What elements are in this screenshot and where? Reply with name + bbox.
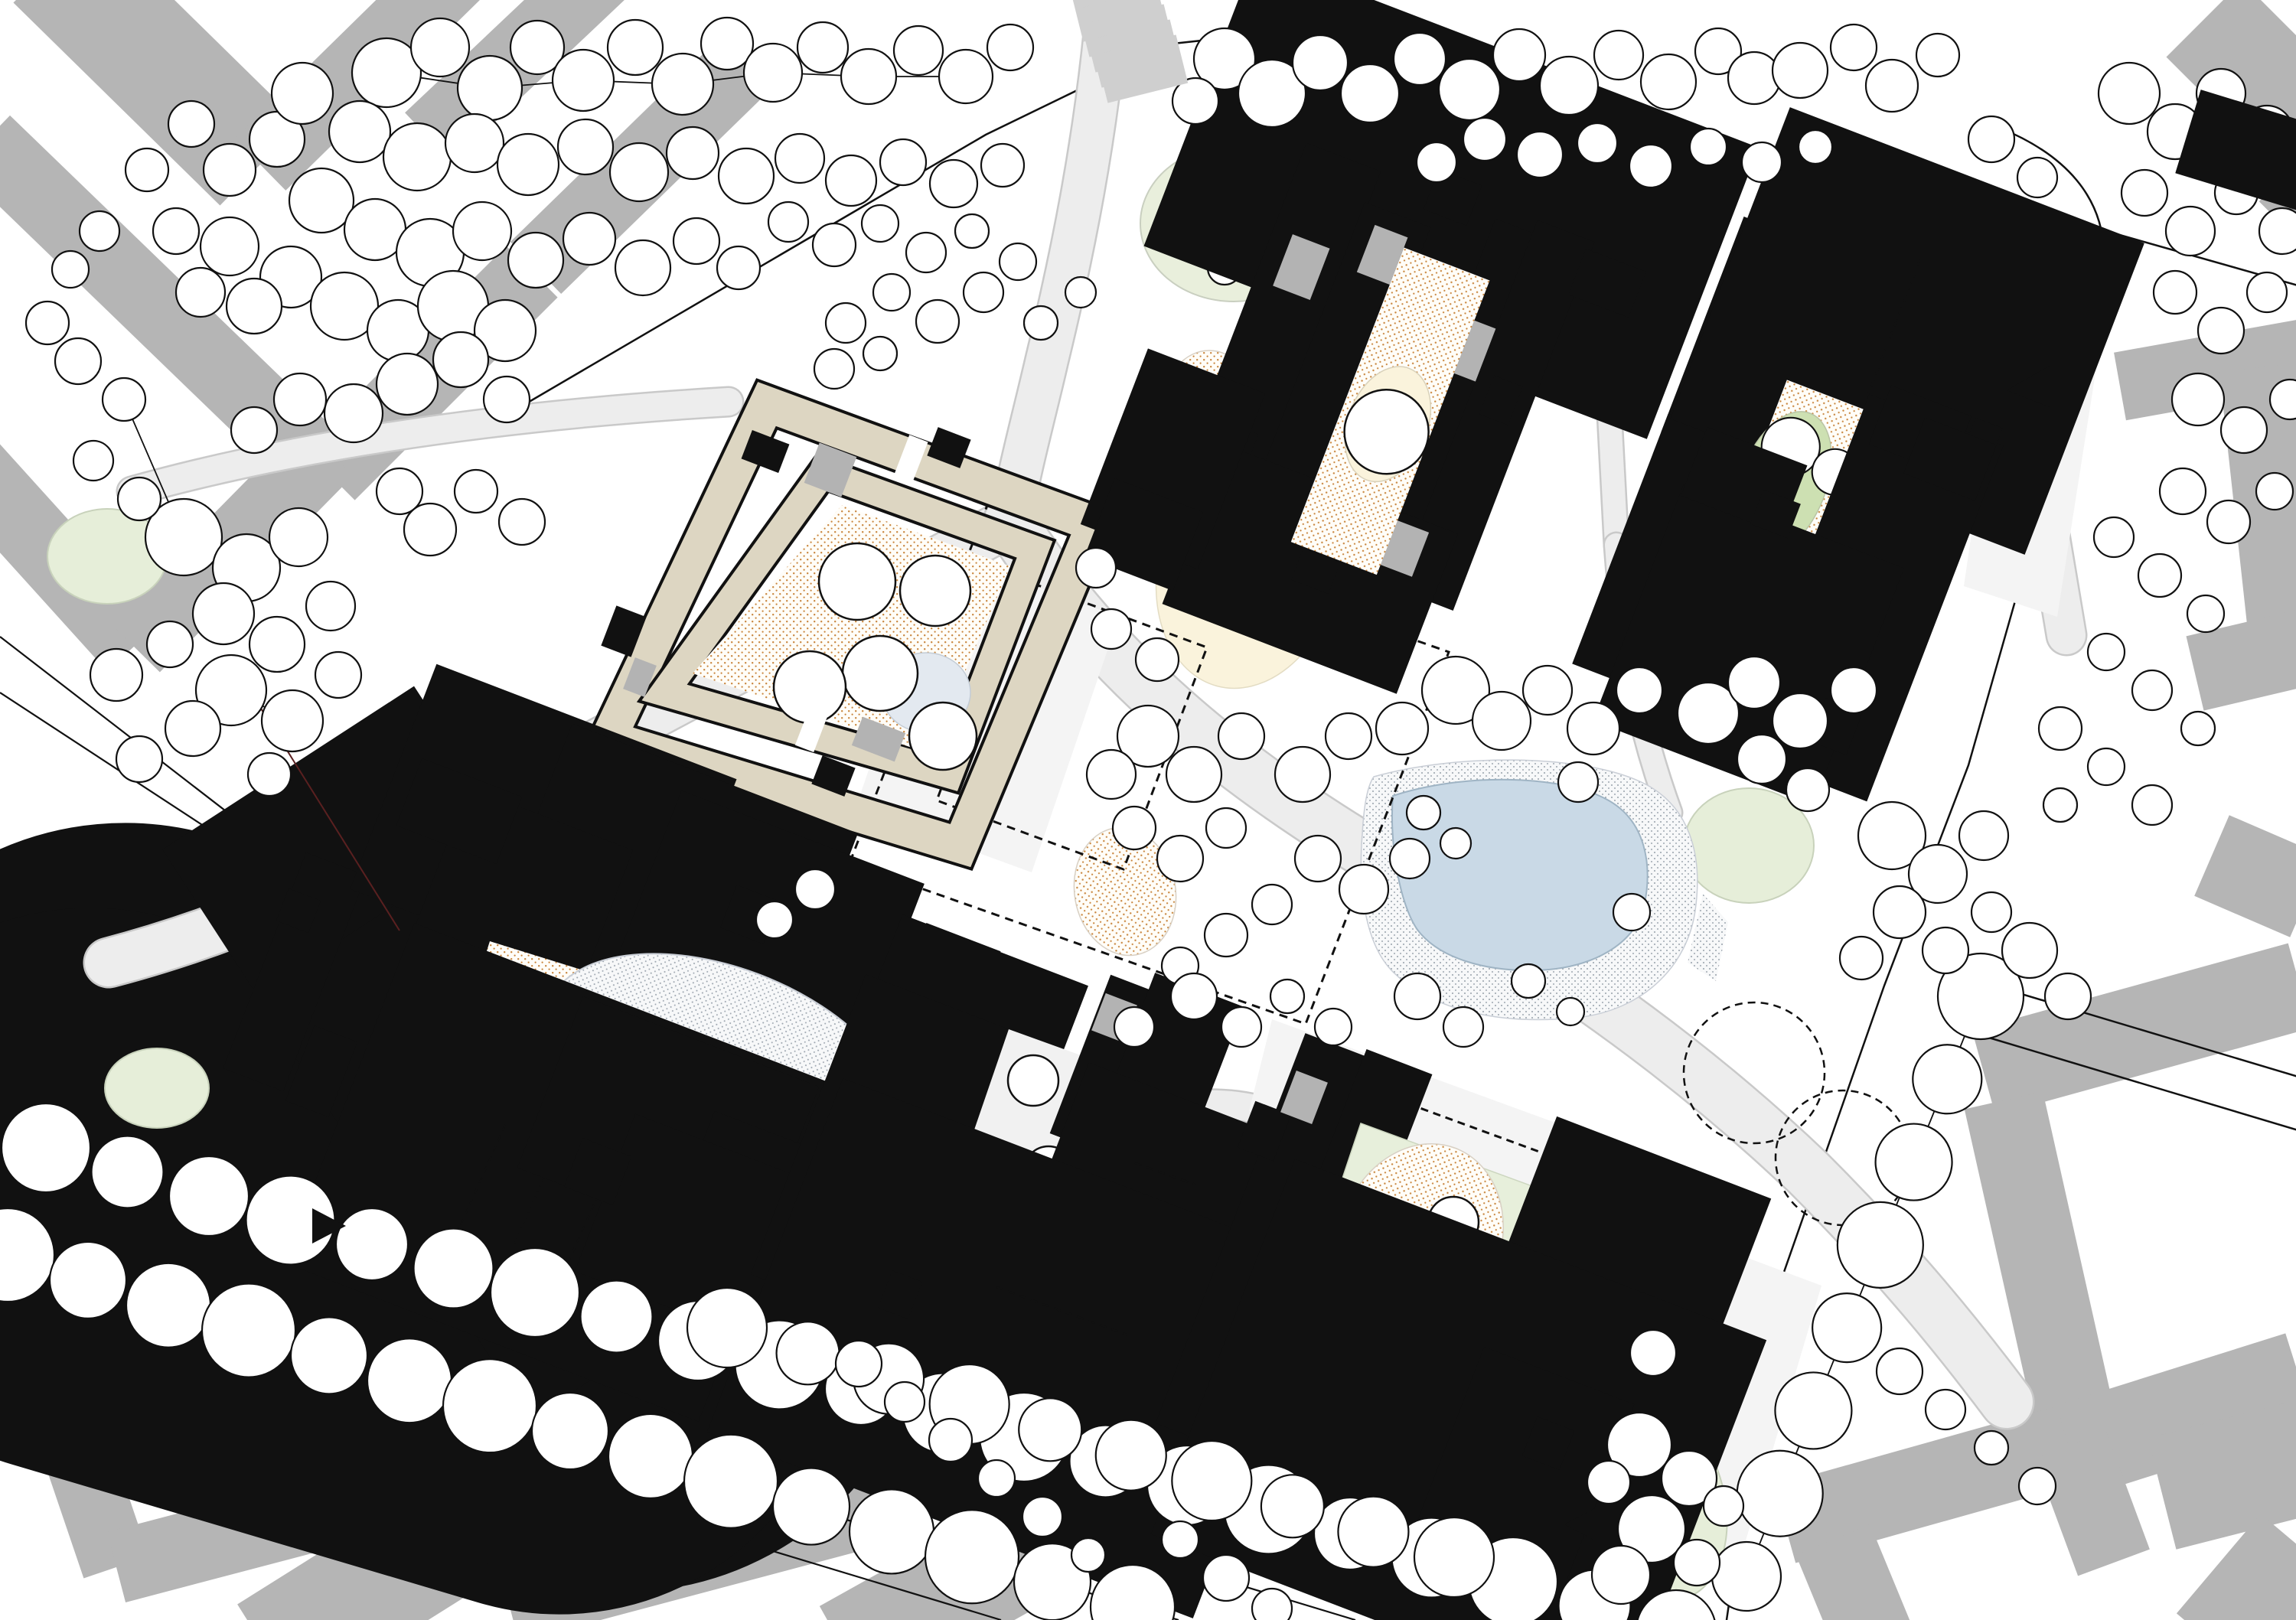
- tree-circle: [2172, 373, 2224, 425]
- tree-circle: [955, 214, 989, 248]
- tree-circle: [836, 1341, 882, 1387]
- tree-circle: [2221, 407, 2267, 453]
- tree-circle: [165, 701, 220, 756]
- tree-row-circle: [581, 1281, 653, 1353]
- tree-circle: [610, 143, 668, 201]
- tree-circle: [315, 652, 361, 698]
- tree-circle: [153, 208, 199, 254]
- tree-circle: [1341, 64, 1399, 122]
- complex-southwest-rect-24: [639, 1178, 757, 1279]
- tree-circle: [1293, 35, 1348, 90]
- tree-circle: [289, 168, 354, 233]
- tree-circle: [1206, 808, 1246, 848]
- tree-circle: [1975, 1431, 2008, 1465]
- tree-circle: [2138, 554, 2181, 597]
- tree-circle: [863, 337, 897, 370]
- landscape-ellipse-15: [105, 1048, 209, 1128]
- tree-circle: [445, 114, 504, 172]
- tree-circle: [813, 223, 856, 266]
- complex-west-circle-8: [843, 636, 918, 711]
- complex-north-grp-0-rect-15: [1115, 509, 1172, 560]
- tree-circle: [325, 384, 383, 442]
- tree-circle: [1071, 1538, 1105, 1572]
- tree-circle: [1326, 713, 1371, 759]
- tree-circle: [1221, 1007, 1261, 1047]
- tree-circle: [453, 202, 511, 260]
- tree-circle: [1517, 132, 1563, 178]
- tree-circle: [433, 332, 488, 387]
- tree-circle: [262, 690, 323, 751]
- tree-circle: [667, 127, 719, 179]
- tree-circle: [1493, 29, 1545, 81]
- tree-circle: [2256, 473, 2293, 510]
- tree-row-circle: [1737, 1451, 1823, 1537]
- tree-circle: [894, 26, 943, 75]
- markers-rect-5-g: [2218, 132, 2289, 170]
- tree-circle: [118, 478, 161, 520]
- complex-southwest-rect-25-g: [581, 1155, 615, 1188]
- tree-circle: [103, 378, 145, 421]
- tree-circle: [1616, 667, 1662, 713]
- tree-circle: [201, 217, 259, 275]
- tree-circle: [1540, 57, 1598, 115]
- tree-circle: [1840, 937, 1883, 979]
- tree-circle: [1295, 836, 1341, 882]
- tree-row-circle: [1812, 1293, 1881, 1362]
- tree-row-circle: [291, 1317, 367, 1393]
- tree-circle: [1742, 142, 1782, 182]
- tree-circle: [1087, 750, 1136, 799]
- tree-circle: [411, 18, 469, 77]
- tree-circle: [826, 155, 876, 206]
- tree-row-circle: [1775, 1372, 1851, 1449]
- tree-circle: [673, 218, 719, 264]
- tree-circle: [916, 300, 959, 343]
- tree-circle: [608, 20, 663, 75]
- markers-rect-4: [1929, 442, 1972, 476]
- tree-circle: [1218, 713, 1264, 759]
- tree-circle: [2043, 788, 2077, 822]
- tree-circle: [1831, 667, 1877, 713]
- tree-circle: [1923, 927, 1968, 973]
- tree-row-circle: [491, 1248, 579, 1337]
- tree-circle: [1376, 702, 1428, 755]
- tree-circle: [2181, 712, 2215, 745]
- tree-circle: [1162, 1521, 1199, 1558]
- tree-circle: [1157, 836, 1203, 882]
- tree-circle: [964, 272, 1003, 312]
- tree-circle: [906, 233, 946, 272]
- tree-circle: [1577, 123, 1617, 163]
- tree-circle: [1971, 892, 2011, 932]
- tree-circle: [2247, 272, 2287, 312]
- tree-circle: [329, 101, 390, 162]
- tree-circle: [116, 736, 162, 782]
- tree-row-circle: [687, 1288, 767, 1367]
- tree-circle: [652, 54, 713, 115]
- tree-circle: [52, 251, 89, 288]
- complex-southwest-rect-11: [431, 793, 488, 829]
- tree-circle: [26, 302, 69, 344]
- tree-circle: [1024, 306, 1058, 340]
- tree-circle: [193, 583, 254, 644]
- site-plan-svg: [0, 0, 2296, 1620]
- tree-row-circle: [169, 1156, 249, 1236]
- tree-circle: [1786, 768, 1829, 811]
- tree-circle: [2039, 707, 2082, 750]
- site-plan-stage: [0, 0, 2296, 1620]
- tree-circle: [1799, 130, 1832, 164]
- tree-circle: [249, 617, 305, 672]
- tree-circle: [553, 50, 614, 111]
- tree-circle: [2160, 468, 2206, 514]
- tree-row-circle: [684, 1435, 778, 1528]
- tree-row-circle: [1913, 1045, 1981, 1113]
- tree-circle: [231, 407, 277, 453]
- tree-circle: [269, 508, 328, 566]
- tree-circle: [2198, 308, 2244, 354]
- context-buildings-line-28: [2223, 1553, 2296, 1620]
- tree-row-circle: [532, 1393, 608, 1469]
- tree-circle: [1443, 1007, 1483, 1047]
- tree-circle: [73, 441, 113, 481]
- tree-circle: [2122, 170, 2167, 216]
- tree-circle: [1674, 1540, 1720, 1586]
- tree-circle: [1737, 735, 1786, 784]
- tree-row-circle: [777, 1322, 840, 1384]
- tree-circle: [1440, 828, 1471, 859]
- tree-circle: [1690, 129, 1727, 165]
- tree-circle: [2088, 634, 2125, 670]
- tree-circle: [1968, 116, 2014, 162]
- tree-circle: [841, 49, 896, 104]
- tree-circle: [1091, 609, 1131, 649]
- complex-west-circle-7: [900, 556, 970, 626]
- tree-row-circle: [1019, 1398, 1081, 1461]
- tree-circle: [2094, 517, 2134, 557]
- tree-circle: [981, 144, 1024, 187]
- tree-row-circle: [126, 1263, 210, 1348]
- markers-rect-5: [2218, 132, 2289, 170]
- tree-circle: [1252, 1589, 1292, 1620]
- tree-circle: [1557, 998, 1584, 1025]
- tree-circle: [2132, 670, 2172, 710]
- tree-circle: [404, 504, 456, 556]
- tree-circle: [1592, 1546, 1650, 1604]
- tree-row-circle: [1414, 1517, 1494, 1597]
- tree-circle: [795, 869, 835, 909]
- tree-circle: [2187, 595, 2224, 632]
- tree-circle: [80, 211, 119, 251]
- tree-row-circle: [367, 1338, 452, 1423]
- tree-circle: [1390, 839, 1430, 878]
- tree-circle: [1171, 973, 1217, 1019]
- tree-circle: [1728, 657, 1780, 709]
- tree-circle: [873, 274, 910, 311]
- tree-circle: [862, 205, 899, 242]
- tree-circle: [168, 101, 214, 147]
- tree-circle: [797, 22, 848, 73]
- complex-south-circle-7: [1008, 1055, 1058, 1106]
- tree-circle: [1587, 1461, 1630, 1504]
- tree-circle: [2045, 973, 2091, 1019]
- tree-circle: [1275, 747, 1330, 802]
- tree-circle: [1959, 811, 2008, 860]
- complex-east-grp-0-rect-17-g: [1763, 503, 1788, 526]
- tree-row-circle: [1172, 1441, 1251, 1521]
- tree-circle: [1394, 973, 1440, 1019]
- tree-circle: [744, 44, 802, 102]
- context-buildings-line-25: [1833, 1540, 1877, 1620]
- tree-circle: [1641, 54, 1696, 109]
- tree-circle: [775, 134, 824, 183]
- tree-circle: [1270, 979, 1304, 1013]
- tree-circle: [768, 202, 808, 242]
- tree-circle: [756, 901, 793, 938]
- context-buildings-line-12: [2195, 647, 2296, 673]
- tree-circle: [455, 470, 497, 513]
- tree-circle: [458, 56, 522, 120]
- tree-circle: [1022, 1497, 1062, 1537]
- tree-circle: [2099, 63, 2160, 124]
- tree-circle: [90, 649, 142, 701]
- tree-circle: [2166, 207, 2215, 256]
- tree-circle: [1523, 666, 1572, 715]
- tree-circle: [1463, 118, 1506, 161]
- tree-circle: [1926, 1390, 1965, 1429]
- tree-circle: [885, 1382, 925, 1422]
- tree-row-circle: [1338, 1497, 1408, 1567]
- tree-row-circle: [92, 1136, 164, 1208]
- tree-circle: [1473, 692, 1531, 750]
- markers-rect-3: [1589, 269, 1625, 297]
- tree-row-circle: [336, 1208, 408, 1280]
- tree-circle: [1203, 1555, 1249, 1601]
- tree-row-circle: [1838, 1202, 1923, 1288]
- complex-north-grp-0-rect-15-g: [1115, 509, 1172, 560]
- tree-row-circle: [773, 1468, 850, 1545]
- tree-circle: [717, 246, 760, 289]
- tree-circle: [55, 338, 101, 384]
- tree-circle: [826, 303, 866, 343]
- tree-row-circle: [414, 1229, 494, 1309]
- tree-circle: [930, 160, 977, 207]
- tree-circle: [274, 373, 326, 425]
- tree-circle: [377, 354, 438, 415]
- tree-circle: [1114, 1007, 1154, 1047]
- tree-row-circle: [202, 1284, 295, 1377]
- complex-southwest-rect-25: [581, 1155, 615, 1188]
- tree-circle: [1629, 145, 1672, 187]
- tree-circle: [1113, 807, 1156, 849]
- tree-circle: [2207, 500, 2250, 543]
- context-buildings-line-26: [2070, 1445, 2114, 1563]
- tree-circle: [248, 753, 291, 796]
- context-buildings-line-16: [2212, 856, 2296, 897]
- tree-circle: [1252, 885, 1292, 924]
- tree-row-circle: [1712, 1542, 1781, 1611]
- markers-rect-10: [1120, 60, 1163, 78]
- tree-circle: [306, 582, 355, 631]
- tree-circle: [987, 24, 1033, 70]
- complex-southwest-rect-11-g: [431, 793, 488, 829]
- tree-circle: [1916, 34, 1959, 77]
- complex-east-grp-0-rect-17: [1763, 503, 1788, 526]
- tree-circle: [1065, 277, 1096, 308]
- tree-circle: [497, 134, 559, 195]
- tree-circle: [227, 279, 282, 334]
- tree-row-circle: [1261, 1475, 1324, 1537]
- tree-row-circle: [850, 1489, 934, 1573]
- tree-row-circle: [2, 1103, 90, 1192]
- tree-circle: [2154, 271, 2197, 314]
- tree-circle: [978, 1460, 1015, 1497]
- tree-circle: [719, 148, 774, 204]
- tree-circle: [499, 499, 545, 545]
- complex-west-circle-6: [819, 543, 895, 620]
- tree-circle: [1407, 796, 1440, 830]
- tree-circle: [2132, 785, 2172, 825]
- tree-row-circle: [50, 1242, 126, 1318]
- tree-circle: [880, 139, 926, 185]
- tree-circle: [1417, 142, 1456, 182]
- tree-circle: [1512, 964, 1545, 998]
- tree-circle: [1000, 243, 1036, 280]
- markers-rect-10-g: [1120, 60, 1163, 78]
- tree-circle: [1076, 548, 1116, 588]
- tree-row-circle: [1096, 1420, 1166, 1491]
- tree-circle: [176, 268, 225, 317]
- tree-circle: [1874, 886, 1926, 938]
- tree-circle: [615, 240, 670, 295]
- tree-circle: [939, 50, 993, 103]
- tree-circle: [383, 123, 451, 191]
- tree-circle: [1439, 59, 1500, 120]
- markers-rect-3-g: [1589, 269, 1625, 297]
- tree-row-circle: [925, 1510, 1019, 1603]
- tree-circle: [1831, 24, 1877, 70]
- tree-circle: [814, 349, 854, 389]
- tree-circle: [563, 213, 615, 265]
- tree-row-circle: [443, 1359, 536, 1452]
- tree-circle: [1866, 60, 1918, 112]
- complex-southwest-rect-24-g: [639, 1178, 757, 1279]
- tree-circle: [1339, 865, 1388, 914]
- markers-rect-4-g: [1929, 442, 1972, 476]
- tree-circle: [508, 233, 563, 288]
- tree-circle: [272, 63, 333, 124]
- tree-circle: [1205, 914, 1247, 957]
- tree-circle: [1394, 33, 1446, 85]
- complex-west-circle-10: [909, 702, 977, 770]
- tree-circle: [2088, 748, 2125, 785]
- tree-circle: [1877, 1348, 1923, 1394]
- tree-circle: [1630, 1330, 1676, 1376]
- context-buildings-line-27: [2162, 1458, 2296, 1494]
- tree-circle: [1773, 43, 1828, 98]
- tree-circle: [1773, 693, 1828, 748]
- tree-circle: [1613, 894, 1650, 931]
- tree-circle: [1567, 702, 1619, 755]
- tree-circle: [2019, 1468, 2056, 1504]
- tree-circle: [126, 148, 168, 191]
- tree-circle: [1704, 1486, 1743, 1526]
- tree-circle: [2017, 158, 2057, 197]
- tree-circle: [1594, 31, 1643, 80]
- tree-circle: [204, 144, 256, 196]
- tree-row-circle: [1876, 1124, 1952, 1201]
- tree-circle: [147, 621, 193, 667]
- tree-circle: [484, 376, 530, 422]
- tree-row-circle: [608, 1414, 693, 1498]
- tree-circle: [929, 1419, 972, 1462]
- tree-circle: [1728, 52, 1780, 104]
- tree-circle: [1136, 638, 1179, 681]
- tree-circle: [558, 119, 613, 174]
- tree-circle: [2259, 208, 2296, 254]
- tree-circle: [2002, 923, 2057, 978]
- tree-circle: [1166, 747, 1221, 802]
- tree-circle: [1558, 762, 1598, 802]
- tree-circle: [1315, 1009, 1352, 1045]
